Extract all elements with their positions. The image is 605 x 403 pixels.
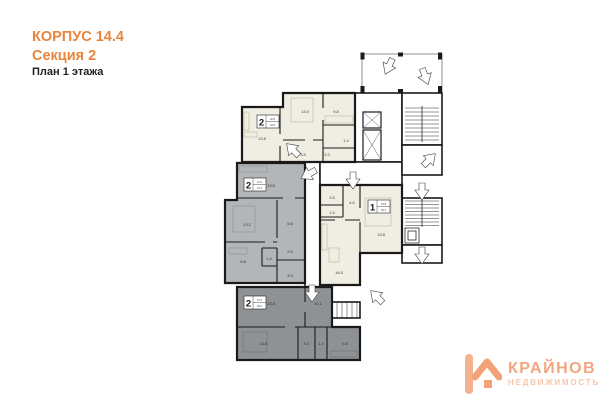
badge-cell: 27.6: [257, 298, 263, 302]
logo-text: КРАЙНОВ НЕДВИЖИМОСТЬ: [508, 361, 600, 387]
badge-type: 1: [370, 203, 376, 214]
title-block: КОРПУС 14.4 Секция 2 План 1 этажа: [32, 30, 124, 78]
entry-arrow: [366, 286, 388, 308]
apartment-2room-middle: 13.8 13.2 9.8 5.6 2.9 1.4 3.3 2 27.0 47.…: [225, 163, 305, 283]
floor-plan: 13.8 13.0 9.8 1.4 3.5 3.3 2 26.8 44.8: [205, 50, 455, 395]
room-label: 13.2: [243, 222, 252, 227]
room-label: 9.8: [240, 259, 246, 264]
badge-cell: 47.2: [257, 186, 263, 190]
room-label: 13.8: [267, 301, 276, 306]
floor-title: План 1 этажа: [32, 67, 124, 78]
corridor-vertical: [305, 162, 320, 287]
k-house-icon: [462, 352, 502, 396]
apartment-badge: 2 27.0 47.2: [244, 178, 266, 192]
apartment-badge: 1 13.8 39.3: [368, 200, 390, 214]
badge-cell: 13.8: [381, 202, 387, 206]
room-label: 3.3: [324, 152, 330, 157]
corridor-horizontal: [320, 162, 402, 185]
badge-cell: 27.0: [257, 180, 263, 184]
badge-cell: 26.8: [270, 117, 276, 121]
room-label: 1.4: [318, 341, 324, 346]
badge-cell: 46.0: [257, 304, 263, 308]
room-label: 4.0: [349, 200, 355, 205]
room-label: 10.1: [314, 301, 323, 306]
section-title: Секция 2: [32, 49, 124, 64]
badge-type: 2: [246, 299, 251, 310]
room-label: 9.8: [333, 109, 339, 114]
room-label: 5.6: [287, 221, 293, 226]
badge-cell: 39.3: [381, 208, 387, 212]
stair-elevator-box: [405, 228, 419, 243]
entrance-porch: [361, 53, 443, 94]
building-title: КОРПУС 14.4: [32, 30, 124, 45]
room-label: 1.5: [329, 210, 335, 215]
room-label: 1.4: [343, 138, 349, 143]
room-label: 3.5: [300, 152, 306, 157]
room-label: 3.3: [287, 273, 293, 278]
apartment-badge: 2 27.6 46.0: [244, 296, 266, 310]
room-label: 9.8: [342, 341, 348, 346]
room-label: 3.5: [329, 195, 335, 200]
apartment-1room-center: 3.5 1.5 4.0 16.5 13.8 1 13.8 39.3: [320, 185, 402, 285]
entry-steps: [332, 302, 360, 318]
apartment-badge: 2 26.8 44.8: [257, 115, 279, 129]
room-label: 16.5: [335, 270, 344, 275]
badge-cell: 44.8: [270, 123, 276, 127]
apartment-2room-bottom: 13.8 10.1 13.8 3.3 1.4 9.8 2 27.6 46.0: [237, 287, 360, 360]
room-label: 1.4: [266, 256, 272, 261]
room-label: 3.3: [303, 341, 309, 346]
room-label: 13.8: [258, 136, 267, 141]
room-label: 13.8: [259, 341, 268, 346]
screenshot-root: КОРПУС 14.4 Секция 2 План 1 этажа: [0, 0, 605, 403]
room-label: 13.0: [301, 109, 310, 114]
logo-brand: КРАЙНОВ: [508, 361, 600, 377]
room-label: 2.9: [287, 249, 293, 254]
badge-type: 2: [259, 118, 264, 129]
stair-landing-1: [402, 145, 442, 175]
room-label: 13.8: [377, 232, 386, 237]
logo-subtitle: НЕДВИЖИМОСТЬ: [508, 379, 600, 387]
elevator-shafts: [363, 112, 381, 160]
room-label: 13.8: [267, 183, 276, 188]
developer-logo: КРАЙНОВ НЕДВИЖИМОСТЬ: [462, 350, 605, 398]
badge-type: 2: [246, 181, 251, 192]
